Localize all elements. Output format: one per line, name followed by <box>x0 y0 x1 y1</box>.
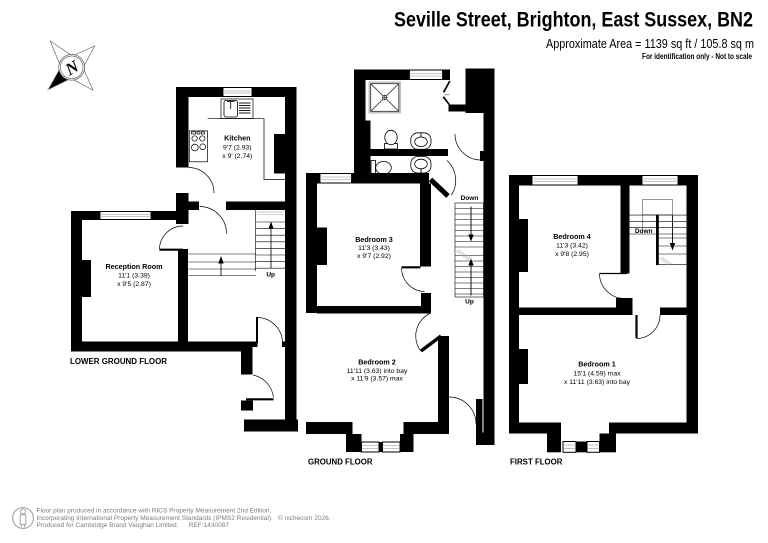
svg-text:Floor plan produced in accorda: Floor plan produced in accordance with R… <box>37 507 272 514</box>
svg-text:REF:1430087: REF:1430087 <box>189 522 229 529</box>
svg-text:LOWER GROUND FLOOR: LOWER GROUND FLOOR <box>70 357 167 366</box>
svg-text:x 11'9 (3.57) max: x 11'9 (3.57) max <box>351 375 403 382</box>
svg-text:FIRST FLOOR: FIRST FLOOR <box>510 458 563 467</box>
svg-text:x 9'5 (2.87): x 9'5 (2.87) <box>117 281 151 288</box>
svg-text:11'11 (3.63) into bay: 11'11 (3.63) into bay <box>347 368 408 375</box>
svg-text:x 11'11 (3.63) into bay: x 11'11 (3.63) into bay <box>564 379 631 386</box>
svg-text:9'7 (2.93): 9'7 (2.93) <box>223 144 252 151</box>
svg-text:Down: Down <box>635 228 653 235</box>
svg-text:Up: Up <box>465 299 474 306</box>
svg-text:Down: Down <box>461 195 479 202</box>
svg-text:Up: Up <box>266 272 275 279</box>
svg-text:11'3 (3.42): 11'3 (3.42) <box>556 243 588 250</box>
svg-text:Bedroom 4: Bedroom 4 <box>553 232 591 241</box>
svg-text:x 9'8 (2.95): x 9'8 (2.95) <box>555 251 589 258</box>
svg-text:Incorporating International Pr: Incorporating International Property Mea… <box>37 515 273 522</box>
svg-text:Reception Room: Reception Room <box>105 262 162 271</box>
svg-text:Bedroom 2: Bedroom 2 <box>358 358 396 367</box>
svg-text:Bedroom 3: Bedroom 3 <box>355 235 393 244</box>
svg-text:Approximate Area = 1139 sq ft: Approximate Area = 1139 sq ft / 105.8 sq… <box>546 36 754 51</box>
svg-text:Bedroom 1: Bedroom 1 <box>578 360 616 369</box>
svg-text:x 9' (2.74): x 9' (2.74) <box>222 153 252 160</box>
svg-text:GROUND FLOOR: GROUND FLOOR <box>308 458 373 467</box>
svg-text:11'1 (3.39): 11'1 (3.39) <box>118 273 150 280</box>
svg-text:For identification only - Not: For identification only - Not to scale <box>642 52 752 61</box>
svg-text:15'1 (4.59) max: 15'1 (4.59) max <box>573 371 621 378</box>
svg-text:Produced for Cambridge Brand V: Produced for Cambridge Brand Vaughan Lim… <box>37 522 179 529</box>
svg-text:Seville Street, Brighton, East: Seville Street, Brighton, East Sussex, B… <box>394 9 753 32</box>
svg-text:© nichecom 2026.: © nichecom 2026. <box>278 514 331 522</box>
svg-text:Kitchen: Kitchen <box>224 134 250 143</box>
svg-text:11'3 (3.43): 11'3 (3.43) <box>358 245 390 252</box>
svg-text:x 9'7 (2.92): x 9'7 (2.92) <box>357 253 391 260</box>
